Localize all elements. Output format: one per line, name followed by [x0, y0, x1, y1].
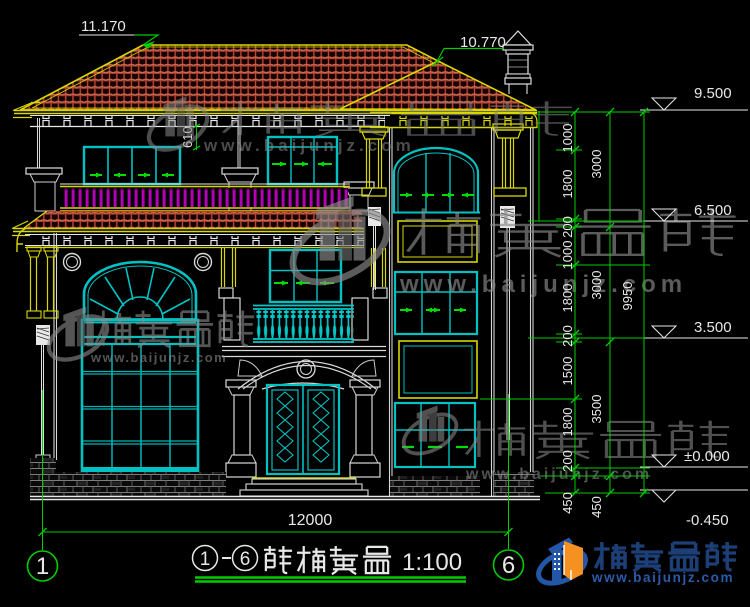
svg-text:1: 1	[36, 553, 49, 580]
svg-text:6.500: 6.500	[694, 202, 732, 219]
svg-text:±0.000: ±0.000	[684, 448, 730, 465]
svg-text:9950: 9950	[620, 282, 635, 311]
svg-text:12000: 12000	[288, 512, 333, 529]
svg-text:www.baijunjz.com: www.baijunjz.com	[203, 136, 415, 155]
svg-text:www.baijunjz.com: www.baijunjz.com	[465, 466, 652, 483]
svg-text:450: 450	[560, 492, 575, 514]
svg-text:3500: 3500	[589, 395, 604, 424]
svg-text:3000: 3000	[589, 271, 604, 300]
svg-text:-0.450: -0.450	[686, 512, 729, 529]
svg-text:200: 200	[560, 450, 575, 472]
svg-text:1500: 1500	[560, 357, 575, 386]
svg-text:6: 6	[240, 549, 251, 570]
svg-text:9.500: 9.500	[694, 85, 732, 102]
svg-text:200: 200	[560, 216, 575, 238]
svg-text:1:100: 1:100	[402, 549, 462, 576]
svg-text:3000: 3000	[589, 150, 604, 179]
svg-text:1000: 1000	[560, 241, 575, 270]
svg-text:1: 1	[200, 549, 211, 570]
svg-text:450: 450	[589, 496, 604, 518]
svg-text:1800: 1800	[560, 170, 575, 199]
svg-text:11.170: 11.170	[81, 18, 126, 35]
svg-text:200: 200	[560, 325, 575, 347]
svg-text:3.500: 3.500	[694, 319, 732, 336]
svg-text:6: 6	[502, 552, 515, 579]
svg-text:1800: 1800	[560, 408, 575, 437]
svg-text:www.baijunjz.com: www.baijunjz.com	[90, 350, 227, 365]
svg-text:1800: 1800	[560, 284, 575, 313]
svg-text:www.baijunjz.com: www.baijunjz.com	[591, 570, 734, 585]
svg-text:1000: 1000	[560, 124, 575, 153]
